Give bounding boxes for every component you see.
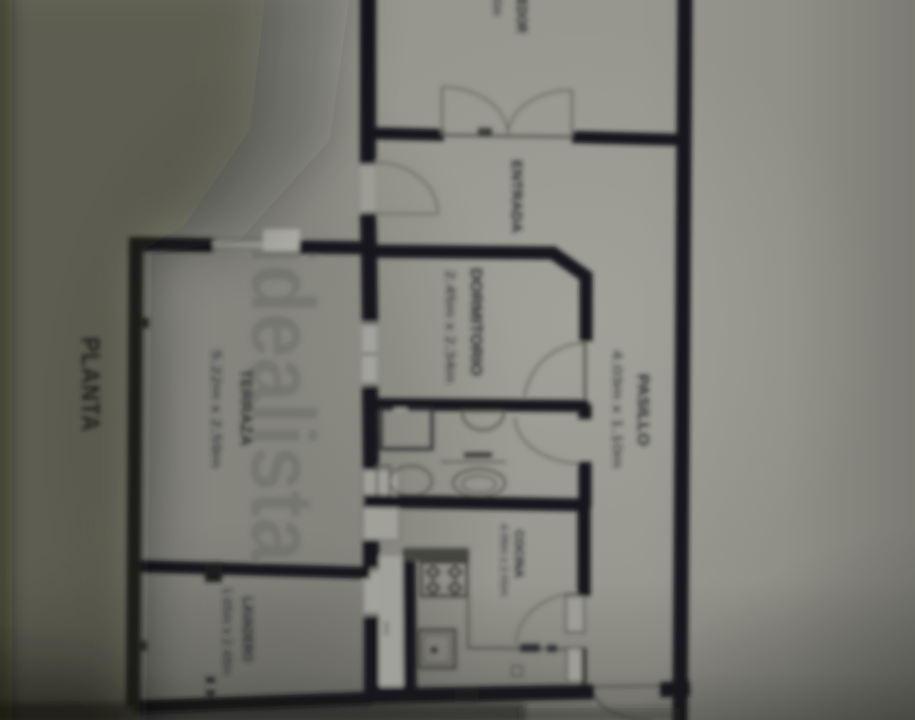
svg-text:SALON-COMEDOR: SALON-COMEDOR [513, 0, 530, 33]
svg-text:5.22m x 2.59m: 5.22m x 2.59m [209, 350, 224, 468]
svg-text:COCINA: COCINA [512, 530, 526, 578]
svg-text:4.03m x 1.10m: 4.03m x 1.10m [610, 350, 625, 468]
svg-text:6.15m x 3.90m: 6.15m x 3.90m [490, 0, 504, 16]
svg-text:2.45m x 2.34m: 2.45m x 2.34m [443, 270, 458, 383]
svg-text:ENTRADA: ENTRADA [508, 160, 525, 233]
svg-text:ARM.: ARM. [382, 621, 389, 637]
svg-text:4.05m x 2.01m: 4.05m x 2.01m [498, 524, 509, 596]
svg-text:TERRAZA: TERRAZA [237, 369, 254, 446]
svg-text:PASILLO: PASILLO [634, 374, 651, 446]
svg-text:DORMITORIO: DORMITORIO [467, 268, 484, 376]
svg-text:1.65m x 2.48m: 1.65m x 2.48m [220, 587, 234, 675]
svg-text:LAVADERO: LAVADERO [239, 597, 256, 662]
